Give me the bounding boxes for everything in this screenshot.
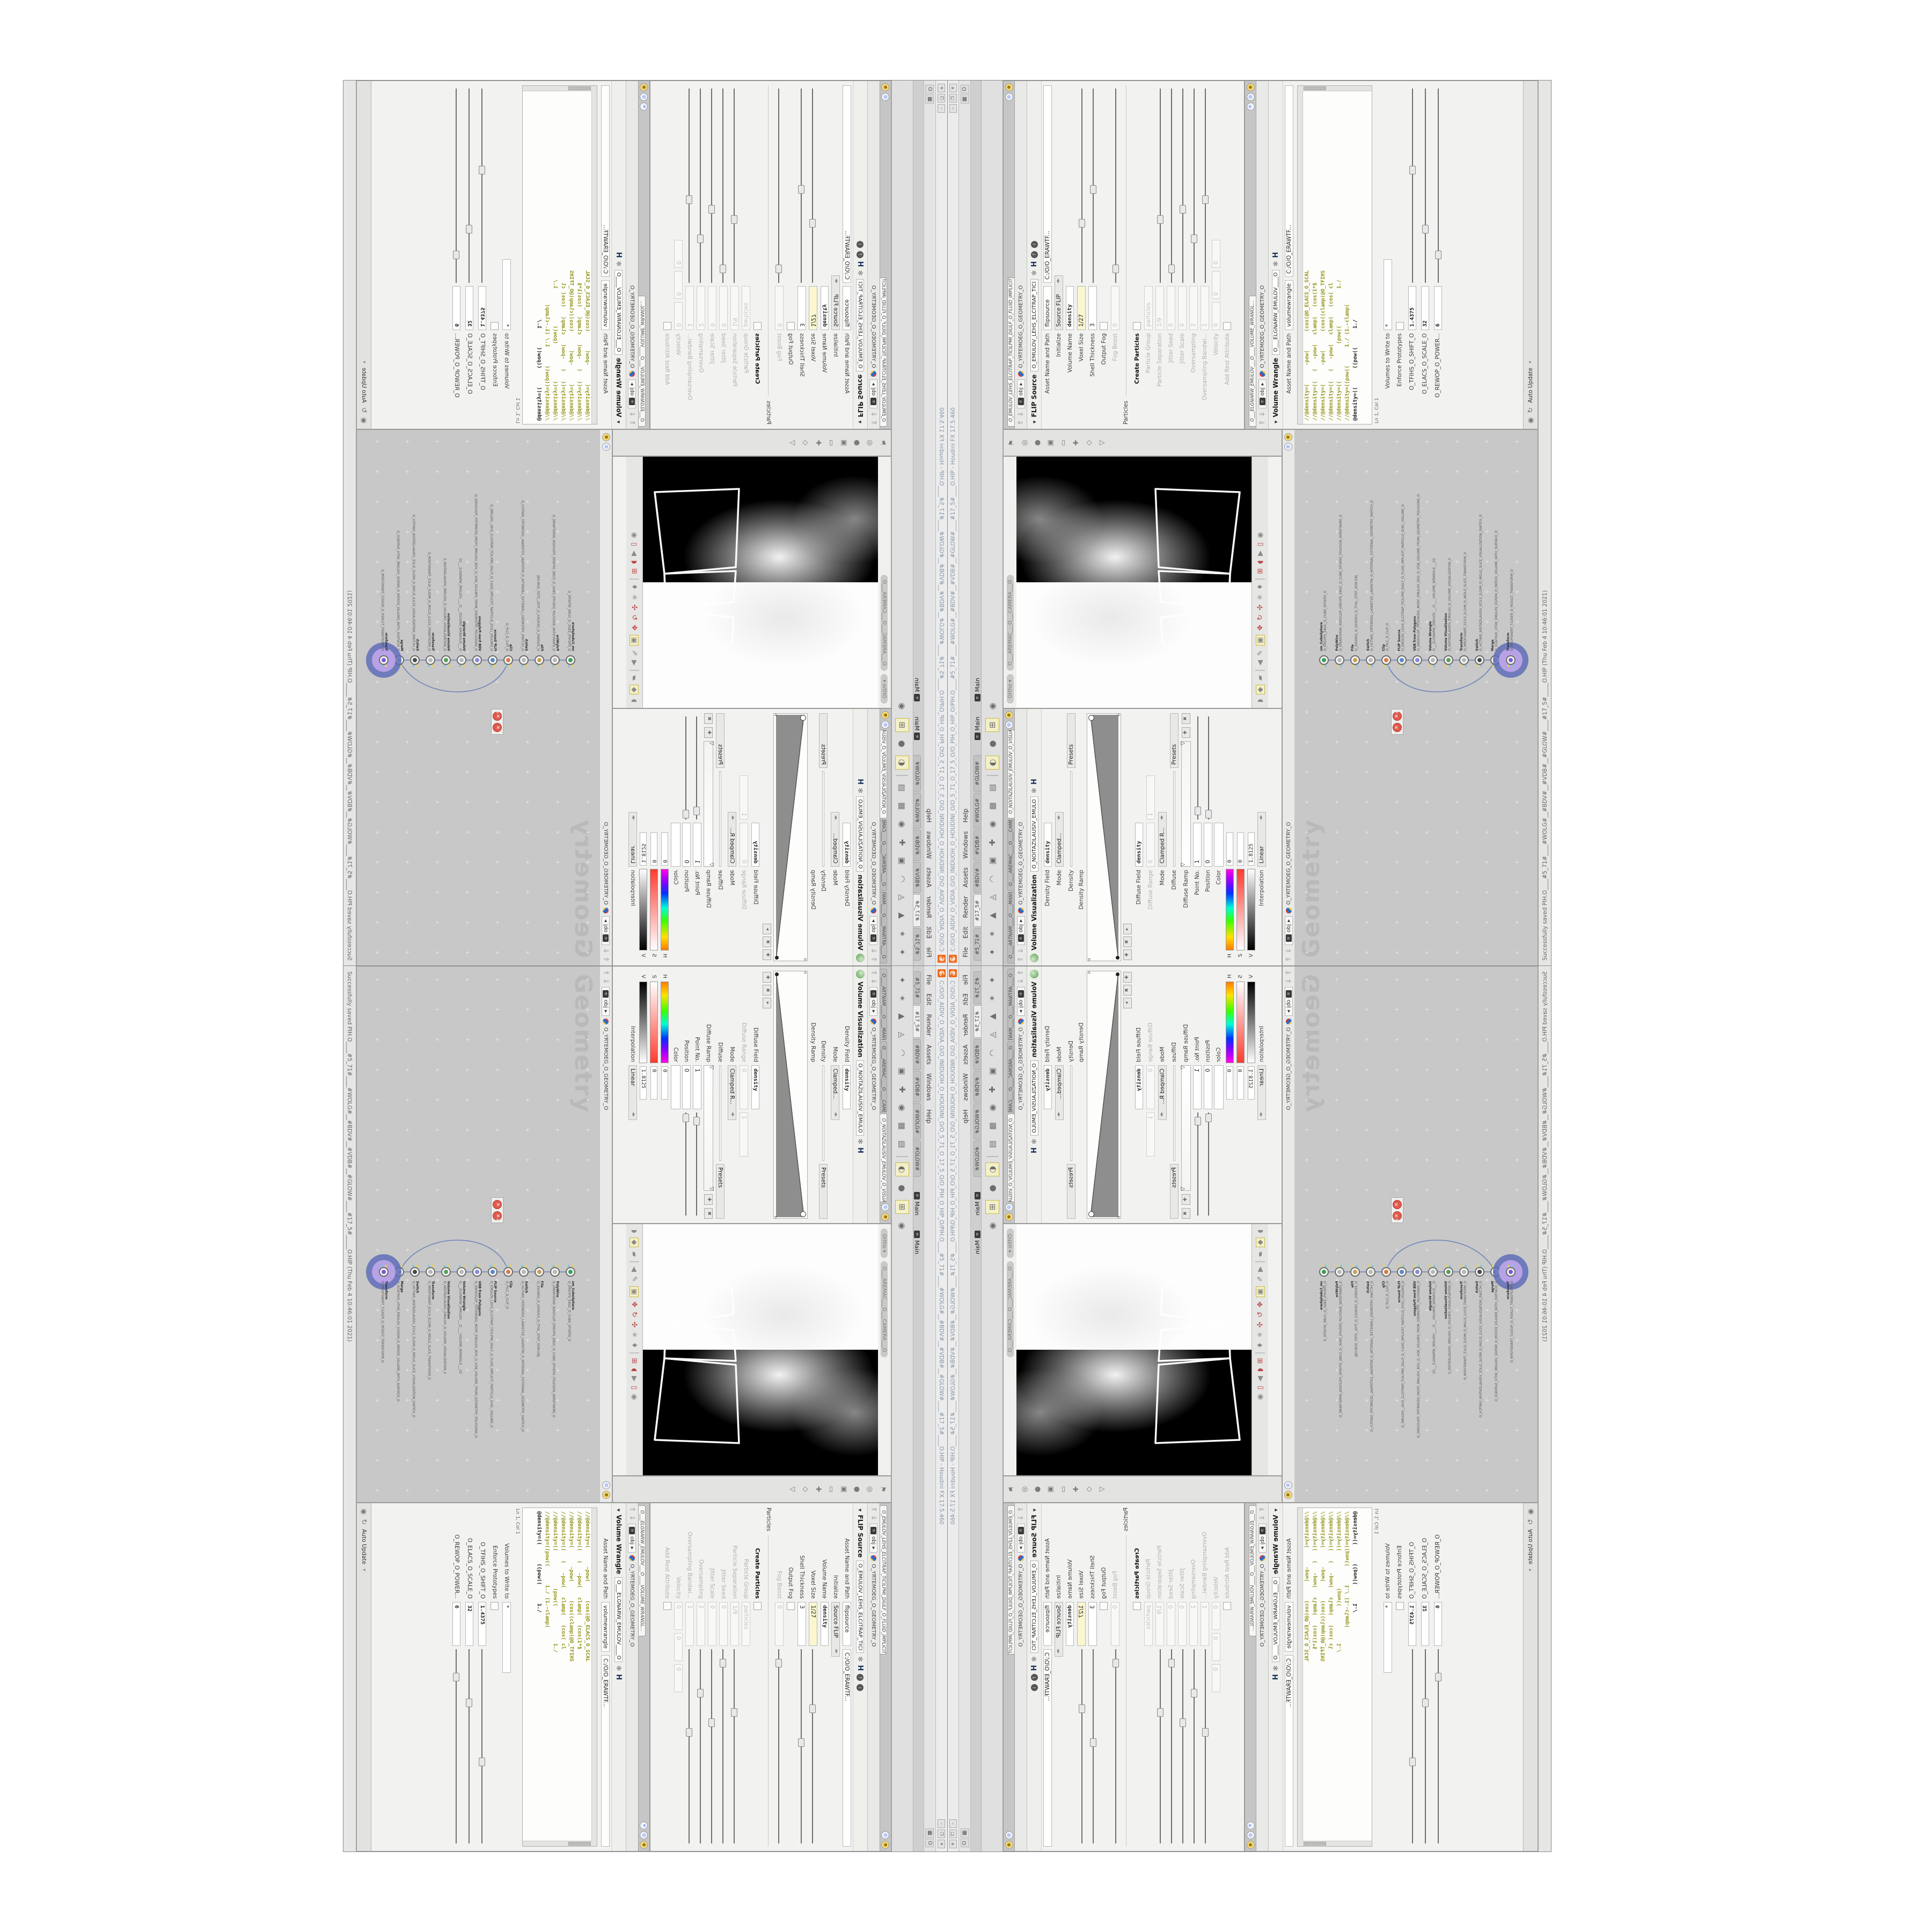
pane-sphere-icon[interactable]: ● <box>1247 1841 1255 1849</box>
oversampling-field[interactable]: 2 <box>1189 286 1198 330</box>
snap-diamond-icon[interactable]: ◆ <box>630 685 639 694</box>
pane-bullseye-icon[interactable]: ◎ <box>603 443 611 451</box>
shade-sphere-icon[interactable]: ◗ <box>1256 699 1264 702</box>
param-slider[interactable] <box>720 85 728 283</box>
curve-icon[interactable]: ◠ <box>896 1046 909 1059</box>
nav-down-icon[interactable]: ⇓ <box>870 1515 878 1521</box>
pane-bullseye-icon[interactable]: ◎ <box>881 93 889 101</box>
platonic-icon[interactable]: ◬ <box>986 891 999 904</box>
param-slider[interactable] <box>698 1649 705 1847</box>
maximize-button[interactable]: ❐ <box>938 1829 946 1838</box>
param-slider[interactable] <box>810 85 817 283</box>
diffuse-range-min[interactable]: 0 <box>740 823 748 867</box>
param-slider[interactable] <box>1167 85 1175 283</box>
volumes-field[interactable]: * <box>1384 1602 1392 1673</box>
nav-down-icon[interactable]: ⇓ <box>1017 411 1025 417</box>
projection-pill[interactable]: Ortho ▾ <box>1007 1228 1014 1258</box>
diffuse-ramp-delete-button[interactable]: ✖ <box>704 1208 713 1219</box>
node-volume-wrangle[interactable] <box>1428 1267 1438 1277</box>
breadcrumb-obj[interactable]: ≡ obj ▸ <box>870 379 878 408</box>
param-slider[interactable] <box>1089 85 1096 283</box>
menu-windows[interactable]: Windows <box>961 1069 970 1105</box>
tab-camera[interactable]: O____AREMAC____O____CAMERA____... <box>1007 1041 1014 1113</box>
diffuse-ramp-bar[interactable]: ▽ ▽ <box>704 741 713 867</box>
composite-view-icon[interactable]: ◐ <box>985 756 999 770</box>
density-field-input[interactable]: density <box>1044 823 1052 867</box>
volume-name-field[interactable]: density <box>1066 1602 1074 1646</box>
platonic-icon[interactable]: ◬ <box>896 1028 909 1041</box>
nav-down-icon[interactable]: ⇓ <box>1017 978 1025 984</box>
tab-mantra[interactable]: O____ARTNAM____O____MANTRA____... <box>880 969 887 1040</box>
shelf-tab-4[interactable]: #WOLG# <box>974 1103 981 1139</box>
network-tab-label[interactable]: O_YRTEMOEG_O_GEOMETRY_O <box>1286 1027 1292 1110</box>
o-rewop-o-power--field[interactable]: 6 <box>1434 1602 1442 1646</box>
image-icon[interactable]: ▤ <box>986 1138 999 1151</box>
collapse-arrow-icon[interactable]: ▾ <box>1272 1509 1279 1512</box>
asset-name-field[interactable]: flipsource <box>1043 286 1052 330</box>
param-slider[interactable] <box>1156 1649 1163 1847</box>
pane-bullseye-icon[interactable]: ◎ <box>603 1481 611 1489</box>
vector-field-1[interactable]: 0 <box>1212 1633 1220 1661</box>
desktop-chip[interactable]: O <box>926 1839 934 1847</box>
wrangle-path-field[interactable]: C:/O/O_ERAWTF... <box>601 1655 610 1847</box>
info-icon[interactable]: i <box>857 241 864 248</box>
param-slider[interactable] <box>1201 85 1209 283</box>
node-switch[interactable] <box>1475 1267 1484 1277</box>
tab-volume-visualization[interactable]: O_NOITAZILAUSIV_EMULOV_O_VISUALIZATION_.… <box>1007 1114 1014 1202</box>
density-ramp-editor[interactable]: ◃ ▹ <box>773 971 808 1219</box>
ramp-handle-right[interactable]: ▹ <box>773 713 779 716</box>
memory-icon[interactable]: ◉ <box>360 1509 368 1514</box>
desktop-label-main[interactable]: ≡ Main <box>974 716 981 740</box>
pane-sphere-icon[interactable]: ● <box>603 433 611 441</box>
breadcrumb-obj[interactable]: ≡ obj ▸ <box>1017 379 1025 408</box>
shelf-tab-2[interactable]: #BDV# <box>974 862 981 893</box>
view-icon[interactable]: ▽ <box>788 1487 796 1492</box>
asset-path-field[interactable]: C:/O/O_ERAWTF... <box>1043 85 1052 283</box>
menu-windows[interactable]: Windows <box>924 827 934 863</box>
shelf-tab-2[interactable]: #BDV# <box>913 862 921 893</box>
maximize-button[interactable]: ❐ <box>949 94 957 103</box>
code-scrollbar-horizontal[interactable] <box>591 1508 597 1846</box>
breadcrumb-network[interactable]: O_YRTEMOEG_O_GEOMETRY_O <box>1018 822 1024 905</box>
flipbook-label-main[interactable]: ≡ Main <box>913 1231 920 1254</box>
pane-bullseye-icon[interactable]: ◎ <box>1005 1831 1013 1839</box>
gear-icon[interactable]: ✻ <box>615 1665 623 1671</box>
breadcrumb-obj[interactable]: ≡ obj ▸ <box>1017 1524 1025 1553</box>
marquee-icon[interactable]: ▭ <box>827 1486 835 1492</box>
param-slider[interactable] <box>1111 85 1119 283</box>
node-transform[interactable] <box>1506 1267 1516 1277</box>
node-file[interactable] <box>535 655 544 665</box>
diffuse-presets-button[interactable]: Presets <box>716 1164 724 1219</box>
density-ramp-editor[interactable]: ◃ ▹ <box>773 713 808 961</box>
info-icon[interactable]: i <box>1031 1684 1038 1691</box>
hue-value[interactable]: 0 <box>662 832 669 866</box>
handles-icon[interactable]: ✚ <box>814 440 822 446</box>
rotate-icon[interactable]: ↻ <box>1256 614 1264 620</box>
diffuse-ramp-marker-right[interactable]: ▽ <box>708 741 714 745</box>
play-icon[interactable]: ▶ <box>1256 551 1264 556</box>
node-vdb-from-polygons[interactable] <box>1413 655 1422 665</box>
diffuse-ramp-marker-right[interactable]: ▽ <box>1180 1187 1186 1191</box>
shelf-tab-3[interactable]: #VDB# <box>913 830 921 861</box>
diffuse-ramp-marker-right[interactable]: ▽ <box>708 1187 714 1191</box>
image-icon[interactable]: ▤ <box>986 781 999 794</box>
diffuse-presets-button[interactable]: Presets <box>716 713 724 768</box>
param-slider[interactable] <box>1089 1649 1096 1847</box>
shelf-tab-3[interactable]: #VDB# <box>974 830 981 861</box>
axis-icon[interactable]: ♦ <box>1256 584 1264 590</box>
flipbook-label-main[interactable]: ≡ Main <box>974 678 981 701</box>
pane-sphere-icon[interactable]: ● <box>640 83 648 91</box>
shelf-tab-1[interactable]: #17_5# <box>913 1005 921 1038</box>
menu-help[interactable]: Help <box>961 1105 970 1128</box>
nav-down-icon[interactable]: ⇓ <box>1258 411 1267 417</box>
oversampling-field[interactable]: 2 <box>697 286 706 330</box>
maximize-button[interactable]: ❐ <box>938 94 946 103</box>
visibility-icon[interactable]: ● <box>896 1182 909 1195</box>
auto-update-menu-arrow[interactable]: ▾ <box>361 1569 367 1571</box>
density-field-input[interactable]: density <box>1044 1065 1052 1109</box>
collapse-arrow-icon[interactable]: ▾ <box>616 420 623 423</box>
node-file[interactable] <box>1350 1267 1360 1277</box>
transform-icon[interactable]: ✣ <box>631 604 639 610</box>
ramp-handle-right[interactable]: ▹ <box>1116 713 1122 716</box>
gear-icon[interactable]: ✻ <box>1030 1139 1038 1144</box>
composite-view-icon[interactable]: ◐ <box>985 1162 999 1176</box>
bullseye-icon[interactable]: ◎ <box>1021 1486 1029 1492</box>
param-slider[interactable] <box>1078 85 1085 283</box>
output-fog-checkbox[interactable] <box>787 1602 795 1610</box>
hue-slider[interactable] <box>1226 982 1234 1063</box>
node-clip[interactable] <box>1381 1267 1391 1277</box>
ramp-point-marker[interactable] <box>800 715 806 721</box>
enforce-prototypes-checkbox[interactable] <box>491 1602 499 1610</box>
breadcrumb-obj[interactable]: ≡ obj ▸ <box>1017 916 1025 945</box>
diffuse-ramp-delete-button[interactable]: ✖ <box>1182 1208 1190 1219</box>
saturation-value[interactable]: 0 <box>651 1066 658 1100</box>
viewport-canvas[interactable] <box>1016 457 1252 708</box>
param-slider[interactable] <box>1190 85 1197 283</box>
nav-down-icon[interactable]: ⇓ <box>1285 948 1293 954</box>
menu-windows[interactable]: Windows <box>961 827 970 863</box>
nav-down-icon[interactable]: ⇓ <box>870 411 878 417</box>
flipbook-label-main[interactable]: ≡ Main <box>913 678 920 701</box>
param-slider[interactable] <box>686 85 694 283</box>
shelf-tab-4[interactable]: #WOLG# <box>974 793 981 829</box>
volviz-node-name-field[interactable]: O_NOITAZILAUSIV_EMULO <box>857 1060 865 1136</box>
gear-icon[interactable]: ✻ <box>857 788 864 793</box>
gear-icon[interactable]: ✻ <box>1030 788 1038 793</box>
o-elacs-o-scale-o-field[interactable]: 32 <box>1421 286 1429 330</box>
character-icon[interactable]: ✶ <box>986 927 999 940</box>
diffuse-ramp-marker-left[interactable]: ▽ <box>708 1065 714 1070</box>
shelf-tab-1[interactable]: #17_5# <box>974 1005 981 1038</box>
hue-slider[interactable] <box>661 869 669 950</box>
shelf-tab-3[interactable]: #VDB# <box>974 1071 981 1102</box>
gear-icon[interactable]: ✻ <box>1272 261 1279 266</box>
menu-windows[interactable]: Windows <box>924 1069 934 1105</box>
ramp-point-start[interactable] <box>1116 956 1119 960</box>
particle-group-field[interactable]: particles <box>1144 286 1153 330</box>
point-no-slider[interactable] <box>1194 713 1201 819</box>
param-slider[interactable] <box>799 1649 806 1847</box>
nav-up-icon[interactable]: ⇑ <box>1017 956 1025 962</box>
diffuse-range-min[interactable]: 0 <box>740 1065 748 1109</box>
diffuse-range-max[interactable]: 1 <box>1146 775 1155 819</box>
menu-assets[interactable]: Assets <box>961 1040 970 1069</box>
volumes-field[interactable]: * <box>502 1602 511 1673</box>
param-slider[interactable] <box>731 85 739 283</box>
breadcrumb-obj[interactable]: ≡ obj ▸ <box>870 1524 878 1553</box>
nav-up-icon[interactable]: ⇑ <box>1017 970 1025 976</box>
eye-icon[interactable]: ◉ <box>986 1219 999 1232</box>
ramp-delete-button[interactable]: ✖ <box>1123 936 1132 947</box>
enforce-prototypes-checkbox[interactable] <box>491 322 499 330</box>
particle-group-field[interactable]: particles <box>1144 1602 1153 1646</box>
diffuse-ramp-marker-left[interactable]: ▽ <box>708 862 714 867</box>
layout-switch-icon[interactable]: ▦ <box>926 1828 934 1838</box>
ramp-add-button[interactable]: ✚ <box>763 972 771 983</box>
nav-up-icon[interactable]: ⇑ <box>870 970 878 976</box>
maximize-button[interactable]: ❐ <box>949 1829 957 1838</box>
vector-field-1[interactable]: 0 <box>675 271 683 299</box>
param-slider[interactable] <box>709 1649 716 1847</box>
curve-icon[interactable]: ◠ <box>986 1046 999 1059</box>
minimize-button[interactable]: – <box>938 104 946 113</box>
saturation-value[interactable]: 0 <box>651 832 658 866</box>
magnet-icon[interactable]: ◖ <box>1256 560 1264 564</box>
grid-plus-icon[interactable]: ⊞ <box>985 718 999 732</box>
gear-icon[interactable]: ✻ <box>857 270 864 276</box>
view-icon[interactable]: ▽ <box>1098 1487 1106 1492</box>
o-rewop-o-power--field[interactable]: 6 <box>1434 286 1442 330</box>
bullseye-icon[interactable]: ◎ <box>866 1486 874 1492</box>
param-slider[interactable] <box>686 1649 694 1847</box>
vex-code-editor[interactable]: //@density=( -pow( (cos(@O_ELACS_O_SCAL/… <box>522 85 597 425</box>
menu-assets[interactable]: Assets <box>961 863 970 891</box>
pane-bullseye-icon[interactable]: ◎ <box>1284 443 1292 451</box>
vex-code-editor[interactable]: //@density=( -pow( (cos(@O_ELACS_O_SCAL/… <box>1297 1507 1372 1847</box>
point-no-field[interactable]: 1 <box>1193 823 1202 867</box>
output-fog-checkbox[interactable] <box>1100 322 1108 330</box>
pane-bullseye-icon[interactable]: ◎ <box>1284 1481 1292 1489</box>
spare-param-slider[interactable] <box>453 85 460 283</box>
magnet-grid-icon[interactable]: ⊞ <box>1256 568 1264 574</box>
diffuse-ramp-delete-button[interactable]: ✖ <box>704 713 713 724</box>
diffuse-ramp-bar[interactable]: ▽ ▽ <box>704 1065 713 1191</box>
help-icon[interactable]: ? <box>857 1674 864 1681</box>
volumes-field[interactable]: * <box>1384 259 1392 330</box>
asset-path-field[interactable]: C:/O/O_ERAWTF... <box>843 1649 852 1847</box>
pane-sphere-icon[interactable]: ● <box>1005 711 1013 719</box>
axis-icon[interactable]: ♦ <box>631 584 639 590</box>
position-field[interactable]: 0 <box>682 1065 691 1109</box>
wire-icon[interactable]: ✳ <box>1256 1332 1264 1338</box>
density-mode-menu[interactable]: Clamped...◂▸ <box>1055 1065 1064 1120</box>
marquee-icon[interactable]: ▭ <box>1059 1486 1067 1492</box>
oversampling-field[interactable]: 2 <box>697 1602 706 1646</box>
density-ramp-editor[interactable]: ◃ ▹ <box>1087 713 1121 961</box>
points-box-icon[interactable]: ▣ <box>896 1065 909 1078</box>
breadcrumb-obj[interactable]: ≡ obj ▸ <box>1017 987 1025 1016</box>
page-icon[interactable]: ▰ <box>631 675 639 680</box>
pane-sphere-icon[interactable]: ● <box>640 1841 648 1849</box>
tab-flip-source[interactable]: O_EMULOV_LEHS_ELCITRAP_TICILPMI_DIULF_O_… <box>1007 1505 1014 1655</box>
tab-camera[interactable]: O____AREMAC____O____CAMERA____... <box>880 819 887 891</box>
menu-edit[interactable]: Edit <box>924 922 934 942</box>
volume-name-field[interactable]: density <box>1066 286 1074 330</box>
snap-diamond-icon[interactable]: ◆ <box>630 1238 639 1247</box>
handles-icon[interactable]: ✚ <box>1072 1487 1080 1492</box>
color-swatch[interactable] <box>1214 823 1224 867</box>
point-no-slider[interactable] <box>693 713 701 819</box>
box-icon[interactable]: ▣ <box>1046 440 1055 446</box>
marquee-icon[interactable]: ▭ <box>827 440 835 446</box>
wrangle-node-name-field[interactable]: O___ELGNARW_EMULOV____O <box>1272 270 1280 355</box>
node-switch[interactable] <box>1366 1267 1375 1277</box>
enforce-prototypes-checkbox[interactable] <box>1396 322 1404 330</box>
swirl-icon[interactable]: ◉ <box>1256 532 1264 538</box>
wire-sphere-icon[interactable]: ◉ <box>896 1101 909 1114</box>
menu-help[interactable]: Help <box>924 804 934 827</box>
ramp-point-start[interactable] <box>775 972 779 976</box>
cone-icon[interactable]: ▲ <box>896 1010 909 1023</box>
o-tfihs-o-shift-o-field[interactable]: 1.4375 <box>1408 1602 1416 1646</box>
param-slider[interactable] <box>720 1649 728 1847</box>
gadget-icon[interactable]: ✥ <box>631 1301 639 1307</box>
nav-up-icon[interactable]: ⇑ <box>628 420 636 426</box>
voxel-size-field[interactable]: 1/27 <box>1077 1602 1086 1646</box>
shelf-tab-0[interactable]: #5_71# <box>913 971 921 1004</box>
sphere-icon[interactable]: ● <box>1034 1486 1042 1492</box>
density-field-input[interactable]: density <box>843 1065 851 1109</box>
wire-sphere-icon[interactable]: ◉ <box>986 1101 999 1114</box>
close-button[interactable]: ✕ <box>938 1840 946 1848</box>
gadget-icon[interactable]: ✥ <box>631 625 639 631</box>
diffuse-field-input[interactable]: density <box>1135 1065 1143 1109</box>
grid-plus-icon[interactable]: ⊞ <box>985 1200 999 1214</box>
param-slider[interactable] <box>776 1649 784 1847</box>
composite-view-icon[interactable]: ◐ <box>896 1162 910 1176</box>
pin-icon[interactable]: ⚑ <box>879 440 887 446</box>
value-value[interactable]: 1.8125 <box>1248 832 1255 866</box>
particle-separation-field[interactable]: 1/9 <box>731 1602 740 1646</box>
eye-icon[interactable]: ◉ <box>896 700 909 713</box>
tab-volume-wrangle[interactable]: O___ELGNARW_EMULOV___O____VOLUME_WRANGL.… <box>1249 1505 1256 1636</box>
code-scrollbar-horizontal[interactable] <box>1298 86 1303 424</box>
density-presets-button[interactable]: Presets <box>1067 713 1075 768</box>
collapse-arrow-icon[interactable]: ▾ <box>857 1509 864 1512</box>
pane-bullseye-icon[interactable]: ◎ <box>881 1831 889 1839</box>
voxel-size-field[interactable]: 1/27 <box>1077 286 1086 330</box>
node-sm-cubesphere[interactable] <box>566 1267 575 1277</box>
spare-param-slider[interactable] <box>479 1649 486 1847</box>
diffuse-ramp-bar[interactable]: ▽ ▽ <box>1181 741 1191 867</box>
asset-name-field[interactable]: flipsource <box>1043 1602 1052 1646</box>
view-icon[interactable]: ▽ <box>1098 440 1106 445</box>
font-icon[interactable]: ▦ <box>896 1119 909 1132</box>
desktop-chip[interactable]: O <box>926 85 934 93</box>
pane-close-icon[interactable]: ✕ <box>640 103 648 111</box>
oversampling-bandwi--field[interactable]: 1 <box>686 1602 694 1646</box>
shell-thickness-field[interactable]: 3 <box>1088 286 1097 330</box>
spare-param-slider[interactable] <box>466 1649 473 1847</box>
create-particles-checkbox[interactable] <box>753 322 762 330</box>
breadcrumb-network[interactable]: O_YRTEMOEG_O_GEOMETRY_O <box>871 822 877 905</box>
diffuse-ramp-add-button[interactable]: ✚ <box>1182 1194 1190 1205</box>
handles-icon[interactable]: ✚ <box>814 1487 822 1492</box>
points-box-icon[interactable]: ▣ <box>986 1065 999 1078</box>
node-vdb-from-polygons[interactable] <box>472 655 482 665</box>
curve-icon[interactable]: ◠ <box>986 873 999 885</box>
vector-field-0[interactable]: 0 <box>1212 1602 1220 1630</box>
voxel-size-field[interactable]: 1/27 <box>809 286 818 330</box>
hue-slider[interactable] <box>1226 869 1234 950</box>
menu-render[interactable]: Render <box>924 1010 934 1041</box>
spare-param-slider[interactable] <box>1408 1649 1416 1847</box>
propeller-icon[interactable]: ✚ <box>986 836 999 849</box>
pane-bullseye-icon[interactable]: ◎ <box>881 721 889 729</box>
comet-icon[interactable]: ✦ <box>986 946 999 958</box>
diffuse-ramp-add-button[interactable]: ✚ <box>704 1194 713 1205</box>
marquee-icon[interactable]: ▭ <box>1059 440 1067 446</box>
fog-boost-field[interactable]: 0 <box>775 286 784 330</box>
pane-sphere-icon[interactable]: ● <box>1005 83 1013 91</box>
close-button[interactable]: ✕ <box>938 84 946 92</box>
wire-icon[interactable]: ✳ <box>631 594 639 600</box>
position-field[interactable]: 0 <box>1204 823 1212 867</box>
param-slider[interactable] <box>776 85 784 283</box>
pane-bullseye-icon[interactable]: ◎ <box>1247 1831 1255 1839</box>
shell-thickness-field[interactable]: 3 <box>1088 1602 1097 1646</box>
snap-diamond-icon[interactable]: ◆ <box>1256 685 1265 694</box>
sphere-icon[interactable]: ● <box>853 440 861 445</box>
ramp-handle-left[interactable]: ◃ <box>802 958 808 961</box>
desktop-chip[interactable]: O <box>961 85 969 93</box>
node-flip-source[interactable] <box>1397 655 1407 665</box>
position-slider[interactable] <box>1204 713 1212 819</box>
magnet-grid-icon[interactable]: ⊞ <box>631 1358 639 1364</box>
composite-view-icon[interactable]: ◐ <box>896 756 910 770</box>
minimize-button[interactable]: – <box>949 104 957 113</box>
layout-switch-icon[interactable]: ▦ <box>961 1828 969 1838</box>
collapse-arrow-icon[interactable]: ▾ <box>857 420 864 423</box>
wrangle-node-name-field[interactable]: O___ELGNARW_EMULOV____O <box>615 270 623 355</box>
asset-name-field[interactable]: flipsource <box>843 286 852 330</box>
param-slider[interactable] <box>1167 1649 1175 1847</box>
flipbook-label-main[interactable]: ≡ Main <box>974 1231 981 1254</box>
vector-field-2[interactable]: 0 <box>1212 240 1220 268</box>
param-slider[interactable] <box>1201 1649 1209 1847</box>
param-slider[interactable] <box>799 85 806 283</box>
breadcrumb-obj[interactable]: ≡ obj ▸ <box>602 987 610 1016</box>
density-ramp-editor[interactable]: ◃ ▹ <box>1087 971 1121 1219</box>
minimize-button[interactable]: – <box>938 1819 946 1828</box>
shelf-tab-5[interactable]: #GLOW# <box>913 755 921 791</box>
page-icon[interactable]: ▰ <box>631 1252 639 1257</box>
view-icon[interactable]: ▽ <box>788 440 796 445</box>
snap-diamond-icon[interactable]: ◆ <box>1256 1238 1265 1247</box>
play-icon[interactable]: ▶ <box>631 1376 639 1381</box>
shelf-tab-5[interactable]: #GLOW# <box>913 1140 921 1176</box>
diffuse-ramp-add-button[interactable]: ✚ <box>704 727 713 738</box>
collapse-arrow-icon[interactable]: ▾ <box>1031 1509 1038 1512</box>
box-icon[interactable]: ▣ <box>1046 1486 1055 1492</box>
pin-icon[interactable]: ⚑ <box>1008 440 1016 446</box>
spare-param-slider[interactable] <box>466 85 473 283</box>
